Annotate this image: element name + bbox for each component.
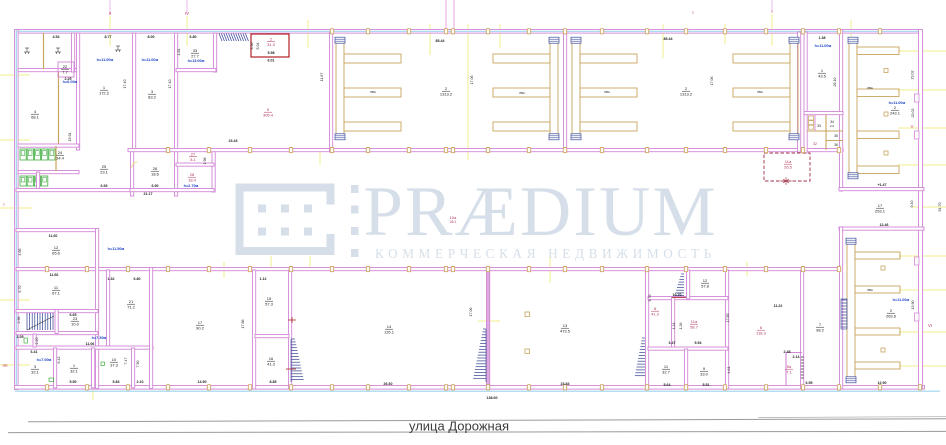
svg-text:4.61: 4.61 <box>727 367 731 374</box>
svg-text:3.50: 3.50 <box>250 43 254 50</box>
svg-text:5.64: 5.64 <box>664 383 671 387</box>
svg-text:58.7: 58.7 <box>690 324 699 329</box>
svg-text:4.66: 4.66 <box>18 249 22 256</box>
svg-text:8.1: 8.1 <box>190 157 196 162</box>
svg-text:I: I <box>3 202 4 207</box>
svg-text:2.10: 2.10 <box>137 380 144 384</box>
svg-text:12.46: 12.46 <box>880 223 889 227</box>
svg-text:2.2: 2.2 <box>830 124 835 128</box>
svg-text:41.3: 41.3 <box>651 311 660 316</box>
svg-text:26.60: 26.60 <box>384 382 393 386</box>
svg-text:23.02: 23.02 <box>911 71 915 80</box>
svg-text:4.54: 4.54 <box>53 35 60 39</box>
svg-text:90.2: 90.2 <box>196 325 205 330</box>
svg-text:11.06: 11.06 <box>86 342 95 346</box>
svg-text:23.43: 23.43 <box>229 139 238 143</box>
svg-text:I: I <box>771 9 772 14</box>
svg-text:26.5: 26.5 <box>784 164 793 169</box>
svg-text:10.70: 10.70 <box>673 293 682 297</box>
svg-text:12.90: 12.90 <box>878 381 887 385</box>
svg-text:37.3: 37.3 <box>110 362 119 367</box>
svg-text:172.2: 172.2 <box>99 90 110 95</box>
svg-text:85.44: 85.44 <box>436 39 445 43</box>
svg-text:3.47: 3.47 <box>669 341 676 345</box>
svg-text:28: 28 <box>190 172 195 177</box>
svg-text:35: 35 <box>834 134 838 138</box>
svg-text:27: 27 <box>191 152 196 157</box>
svg-text:13.90: 13.90 <box>911 301 915 310</box>
svg-text:17.06: 17.06 <box>469 308 473 317</box>
svg-text:6.80: 6.80 <box>190 35 197 39</box>
svg-text:9.40: 9.40 <box>910 201 914 208</box>
svg-text:33.0: 33.0 <box>700 371 709 376</box>
svg-text:1.98: 1.98 <box>203 158 207 165</box>
svg-text:1313.2: 1313.2 <box>440 91 453 96</box>
svg-text:18.6: 18.6 <box>151 171 160 176</box>
svg-text:5.51: 5.51 <box>703 383 710 387</box>
svg-text:12: 12 <box>703 278 708 283</box>
svg-text:1.38: 1.38 <box>819 36 826 40</box>
svg-text:65.6: 65.6 <box>52 250 61 255</box>
svg-text:21.17: 21.17 <box>144 192 153 196</box>
svg-text:1.05: 1.05 <box>17 335 24 339</box>
svg-text:16: 16 <box>269 356 274 361</box>
svg-text:6.42: 6.42 <box>57 357 61 364</box>
svg-text:КОММЕРЧЕСКАЯ НЕДВИЖИМОСТЬ: КОММЕРЧЕСКАЯ НЕДВИЖИМОСТЬ <box>375 246 716 261</box>
svg-text:h=7.30м: h=7.30м <box>92 336 107 340</box>
svg-text:h=2.70м: h=2.70м <box>184 184 199 188</box>
svg-text:улица Дорожная: улица Дорожная <box>409 419 509 434</box>
svg-text:11.66: 11.66 <box>50 273 59 277</box>
svg-text:243.1: 243.1 <box>890 110 901 115</box>
svg-text:h=7.00м: h=7.00м <box>37 358 52 362</box>
svg-text:11а: 11а <box>785 159 792 164</box>
svg-text:8.77: 8.77 <box>105 35 112 39</box>
svg-text:5.50: 5.50 <box>70 380 77 384</box>
svg-text:h=11.50м: h=11.50м <box>108 247 125 251</box>
svg-text:32: 32 <box>813 142 817 146</box>
svg-text:5а: 5а <box>787 364 792 369</box>
svg-text:2.29: 2.29 <box>65 77 72 81</box>
svg-text:23.02: 23.02 <box>911 109 915 118</box>
svg-text:26: 26 <box>153 166 158 171</box>
svg-text:6.01: 6.01 <box>268 59 275 63</box>
svg-text:15: 15 <box>267 296 272 301</box>
svg-text:7.50: 7.50 <box>136 361 140 368</box>
svg-text:138.60: 138.60 <box>487 396 498 400</box>
svg-text:43.5: 43.5 <box>818 73 827 78</box>
svg-text:26.1: 26.1 <box>450 220 457 224</box>
svg-text:22: 22 <box>63 64 68 69</box>
svg-text:II: II <box>109 11 111 16</box>
svg-text:17: 17 <box>878 203 883 208</box>
svg-text:11.60: 11.60 <box>49 234 58 238</box>
svg-text:8.00: 8.00 <box>148 35 155 39</box>
svg-text:305.4: 305.4 <box>263 112 274 117</box>
svg-text:10.0: 10.0 <box>71 321 80 326</box>
svg-text:473.5: 473.5 <box>560 328 571 333</box>
svg-text:10: 10 <box>112 357 117 362</box>
svg-text:98.2: 98.2 <box>816 327 825 332</box>
svg-text:VI: VI <box>928 323 932 328</box>
svg-text:41.3: 41.3 <box>267 361 276 366</box>
svg-text:12: 12 <box>54 245 59 250</box>
svg-text:14.90: 14.90 <box>198 380 207 384</box>
svg-text:1.26: 1.26 <box>679 323 683 330</box>
svg-text:6.55: 6.55 <box>806 381 813 385</box>
svg-text:6.65: 6.65 <box>70 313 77 317</box>
svg-text:1.12: 1.12 <box>260 277 267 281</box>
svg-text:26.10: 26.10 <box>833 78 837 87</box>
svg-text:5.94: 5.94 <box>695 341 702 345</box>
svg-text:32.1: 32.1 <box>31 369 40 374</box>
svg-text:17.86: 17.86 <box>241 320 245 329</box>
svg-text:85.44: 85.44 <box>664 37 673 41</box>
svg-text:13: 13 <box>563 323 568 328</box>
svg-text:33: 33 <box>193 48 198 53</box>
svg-text:7.7: 7.7 <box>62 69 68 74</box>
svg-text:ЛВА: ЛВА <box>867 86 873 90</box>
svg-text:1313.2: 1313.2 <box>680 91 693 96</box>
svg-text:6.93: 6.93 <box>101 184 108 188</box>
svg-text:118.3: 118.3 <box>756 330 766 335</box>
svg-text:54.70: 54.70 <box>938 203 942 212</box>
svg-text:7.1: 7.1 <box>786 369 792 374</box>
svg-text:17: 17 <box>198 320 203 325</box>
svg-text:7.47: 7.47 <box>124 358 128 365</box>
svg-text:18.4: 18.4 <box>188 177 197 182</box>
svg-text:36: 36 <box>834 143 838 147</box>
svg-text:1.24: 1.24 <box>672 323 676 330</box>
svg-text:1.32: 1.32 <box>108 277 115 281</box>
svg-text:2.14: 2.14 <box>793 355 800 359</box>
svg-text:126.1: 126.1 <box>384 329 395 334</box>
svg-text:27.7: 27.7 <box>191 53 200 58</box>
svg-text:5.98: 5.98 <box>268 51 275 55</box>
svg-text:23.1: 23.1 <box>100 169 109 174</box>
svg-text:71.2: 71.2 <box>127 304 136 309</box>
svg-text:IV: IV <box>185 11 189 16</box>
svg-text:2.96: 2.96 <box>17 317 21 324</box>
svg-text:263.6: 263.6 <box>886 313 897 318</box>
svg-text:11.67: 11.67 <box>320 73 324 82</box>
svg-text:11.22: 11.22 <box>774 304 783 308</box>
svg-text:253.1: 253.1 <box>875 208 886 213</box>
svg-text:33: 33 <box>817 124 821 128</box>
svg-text:68.1: 68.1 <box>31 114 40 119</box>
svg-text:57.3: 57.3 <box>265 301 274 306</box>
svg-text:1.84: 1.84 <box>177 49 181 56</box>
svg-text:11а: 11а <box>691 319 698 324</box>
svg-text:83.2: 83.2 <box>148 94 157 99</box>
svg-text:8.85: 8.85 <box>270 380 277 384</box>
svg-text:VII: VII <box>2 363 7 368</box>
svg-text:V: V <box>911 124 914 129</box>
svg-text:17.06: 17.06 <box>710 77 714 86</box>
svg-text:32.1: 32.1 <box>70 368 79 373</box>
svg-text:h=11.00м: h=11.00м <box>893 298 910 302</box>
svg-text:h=11.00м: h=11.00м <box>889 101 906 105</box>
svg-text:ЛВА: ЛВА <box>867 288 873 292</box>
svg-text:I: I <box>692 10 693 15</box>
svg-text:ЛВА: ЛВА <box>604 90 610 94</box>
svg-text:23.84: 23.84 <box>561 382 570 386</box>
svg-text:5.04: 5.04 <box>256 43 260 50</box>
svg-text:2.20: 2.20 <box>35 338 39 345</box>
svg-text:24: 24 <box>58 150 63 155</box>
svg-text:17.85: 17.85 <box>726 314 730 323</box>
svg-text:34.4: 34.4 <box>56 155 65 160</box>
svg-text:2.45: 2.45 <box>784 350 791 354</box>
svg-text:31.3: 31.3 <box>267 42 276 47</box>
svg-text:PRÆDIUM: PRÆDIUM <box>364 173 716 251</box>
svg-text:6.90: 6.90 <box>152 184 159 188</box>
svg-text:5.83: 5.83 <box>113 380 120 384</box>
svg-text:57.8: 57.8 <box>701 283 710 288</box>
svg-text:ЛВА: ЛВА <box>519 91 525 95</box>
svg-text:h=11.00м: h=11.00м <box>815 44 832 48</box>
svg-text:17.40: 17.40 <box>123 80 127 89</box>
svg-text:21: 21 <box>129 299 134 304</box>
svg-text:6.70: 6.70 <box>18 286 22 293</box>
svg-text:ЛВА: ЛВА <box>757 90 763 94</box>
svg-text:25: 25 <box>102 164 107 169</box>
svg-text:17.40: 17.40 <box>168 80 172 89</box>
svg-text:+1.47: +1.47 <box>877 183 886 187</box>
svg-text:6.80: 6.80 <box>134 277 141 281</box>
svg-text:15.91: 15.91 <box>68 133 72 142</box>
svg-text:9.76: 9.76 <box>648 295 652 302</box>
svg-text:17.06: 17.06 <box>470 76 474 85</box>
svg-text:6.41: 6.41 <box>31 350 38 354</box>
svg-text:32.7: 32.7 <box>662 369 671 374</box>
svg-text:h=11.00м: h=11.00м <box>142 58 159 62</box>
svg-text:h=11.00м: h=11.00м <box>97 58 114 62</box>
svg-text:14: 14 <box>387 324 392 329</box>
svg-text:67.1: 67.1 <box>52 290 61 295</box>
svg-text:ЛВА: ЛВА <box>370 90 376 94</box>
svg-text:h=13.00м: h=13.00м <box>188 59 205 63</box>
